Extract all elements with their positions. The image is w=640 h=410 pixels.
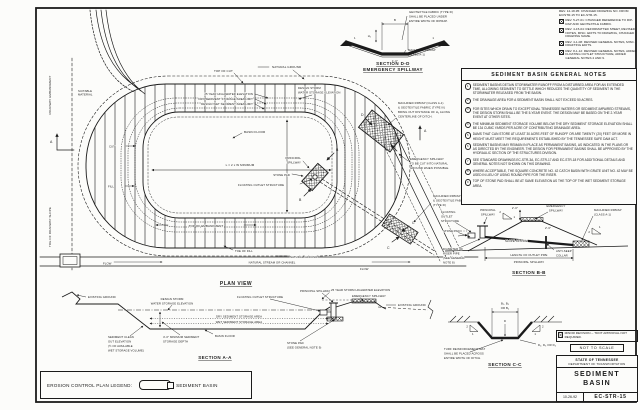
cc-slope-symbol-right	[532, 325, 540, 332]
aa-cleanout-3: (½ OF AVAILABLE	[108, 344, 133, 348]
label-flow-right: FLOW	[360, 267, 369, 271]
dd-slope-left: 1	[354, 36, 356, 40]
dd-fabric-note-3: ENTIRE WIDTH OF RIPRAP.	[409, 19, 448, 23]
bb-floating-outlet	[468, 233, 475, 238]
label-riprap-fabric-1: MACHINED RIPRAP	[433, 194, 461, 198]
note-text: THE MINIMUM SEDIMENT STORAGE VOLUME BELO…	[473, 122, 633, 130]
revision-row: REV. 12-18-95: CHANGED DRAWING NO. FROM …	[559, 10, 638, 17]
label-top-of-embankment: TOP OF EMBANKMENT	[189, 224, 224, 228]
section-aa-detail: EXISTING GROUND DESIGN STORM WATER STORA…	[62, 288, 433, 360]
note-item: 5DAMS THAT CAN STORE AT LEAST 30 ACRE-FE…	[465, 132, 634, 140]
label-suitable-material-2: MATERIAL	[78, 93, 93, 97]
aa-cleanout-1: SEDIMENT CLEAN	[108, 335, 134, 339]
bb-crest-riprap	[521, 218, 543, 222]
note-item: 3FOR SITES WHICH DRAIN TO EXCEPTIONAL TE…	[465, 107, 634, 119]
bb-length-dim-1: LENGTH OF OUTLET PIPE	[510, 253, 547, 257]
note-number: 5	[465, 132, 472, 139]
dd-dim-h: H₂	[368, 34, 371, 38]
cc-slope-rise-left: 1	[472, 332, 474, 336]
spillway-tip-icon	[167, 382, 174, 389]
cc-turf-note-2: SHALL BE PLACED ACROSS	[444, 352, 484, 356]
cc-turf-note-3: ENTIRE WIDTH OF DITCH.	[444, 356, 481, 360]
note-text: SEDIMENT BASINS DETAIN STORMWATER RUNOFF…	[473, 83, 633, 95]
section-a-marker-right: A	[424, 129, 427, 133]
revision-row: REV. 5-27-01: CHANGED REFERENCE TO RIP-R…	[559, 19, 638, 26]
section-cc-title: SECTION C-C	[488, 362, 522, 367]
aa-stone-pad-2: (SEE GENERAL NOTE 9)	[287, 346, 321, 350]
bb-dim1: 2'-0"	[512, 206, 518, 210]
legend-label: EROSION CONTROL PLAN LEGEND:	[47, 383, 132, 388]
bb-principal-2: SPILLWAY	[481, 213, 495, 217]
title-block: MINOR REVISION -- TDOT APPROVAL NOT REQU…	[556, 330, 638, 402]
aa-basin-floor: BASIN FLOOR	[215, 334, 235, 338]
note-item: 6SEDIMENT BASINS MAY REMAIN IN PLACE AS …	[465, 143, 634, 155]
label-roadway-embankment: ROADWAY EMBANKMENT	[48, 75, 52, 114]
general-notes-list: 1SEDIMENT BASINS DETAIN STORMWATER RUNOF…	[462, 81, 636, 188]
label-emergency-note-2: TO BE CUT INTO NATURAL	[410, 162, 448, 166]
aa-design-storm-1: DESIGN STORM	[161, 297, 184, 301]
bb-slope-symbol-left	[503, 213, 512, 219]
label-emergency-note-3: GROUND WHEN POSSIBLE.	[410, 166, 449, 170]
dd-fabric-note-1: GEOTEXTILE FABRIC (TYPE III)	[409, 10, 453, 14]
note-text: TOP OF STONE PAD SHALL BE AT SAME ELEVAT…	[473, 179, 633, 187]
section-cc-detail: B₂, B₃ OR B₄ D D₂, D₃ OR D₄ 2 1 2 1 TURF…	[444, 302, 562, 368]
minor-revision-box: MINOR REVISION -- TDOT APPROVAL NOT REQU…	[556, 330, 638, 342]
note-number: 9	[465, 179, 472, 186]
bb-riser-note-2: RISER PIPE	[443, 252, 460, 256]
label-stone-pad: STONE PAD	[273, 173, 290, 177]
drawing-title: SEDIMENT BASIN	[557, 368, 637, 392]
bb-slope-run-left: 2	[499, 210, 501, 214]
cc-slope-rise-right: 1	[534, 332, 536, 336]
label-riprap-ditch-4: CENTERLINE OF DITCH.	[398, 115, 433, 119]
label-emergency-note-1: EMERGENCY SPILLWAY	[410, 157, 444, 161]
aa-existing-ground-right: EXISTING GROUND	[398, 303, 426, 307]
note-text: SEDIMENT BASINS MAY REMAIN IN PLACE AS P…	[473, 143, 633, 155]
minor-revision-text: MINOR REVISION -- TDOT APPROVAL NOT REQU…	[565, 332, 636, 339]
bb-emergency-2: SPILLWAY	[549, 209, 563, 213]
drawing-sheet: A A B B C C D D	[0, 0, 640, 410]
plan-view-title: PLAN VIEW	[220, 281, 252, 287]
bb-dim3: 2'-6"	[545, 226, 551, 230]
aa-principal-label: PRINCIPAL SPILLWAY	[300, 289, 331, 293]
label-dry-limit: DRY SEDIMENT STORAGE AREA LIMIT	[199, 97, 254, 101]
note-item: 4THE MINIMUM SEDIMENT STORAGE VOLUME BEL…	[465, 122, 634, 130]
drawing-date: 10-26-92	[557, 393, 584, 401]
outlet-riprap-pad	[382, 214, 418, 244]
bb-riser	[480, 226, 485, 238]
revision-text: REV. 5-27-01: CHANGED REFERENCE TO RIP-R…	[565, 19, 638, 26]
label-design-storm-1: DESIGN STORM	[298, 86, 321, 90]
title-block-main: STATE OF TENNESSEE DEPARTMENT OF TRANSPO…	[556, 355, 638, 402]
note-number: 1	[465, 83, 472, 90]
revision-row: REV. 8-1-12: REVISED GENERAL NOTES, ADDE…	[559, 50, 638, 61]
aa-floating-outlet	[320, 310, 327, 315]
note-item: 8WHERE ACCEPTABLE, THE SQUARE CONCRETE N…	[465, 169, 634, 177]
aa-wet-area: WET SEDIMENT STORAGE AREA	[216, 320, 263, 324]
dd-slope-right: 1	[432, 36, 434, 40]
note-text: SEE STANDARD DRAWINGS EC-STR-3A, EC-STR-…	[473, 158, 633, 166]
label-principal-spillway-2: SPILLWAY	[287, 161, 301, 165]
aa-cleanout-2: OUT ELEVATION	[108, 340, 131, 344]
note-number: 7	[465, 158, 472, 165]
cc-width-dim-2: OR B₄	[501, 306, 510, 310]
note-item: 9TOP OF STONE PAD SHALL BE AT SAME ELEVA…	[465, 179, 634, 187]
label-wet-limit: DESIGN WET SEDIMENT AREA LIMIT	[201, 102, 253, 106]
label-design-storm-2: WATER STORAGE ELEVATION	[298, 91, 341, 95]
label-cut: CUT	[109, 145, 115, 149]
bb-outlet-riprap	[573, 241, 589, 247]
aa-emergency-label: EMERGENCY SPILLWAY	[352, 294, 386, 298]
legend-box: EROSION CONTROL PLAN LEGEND: SEDIMENT BA…	[40, 371, 252, 399]
note-number: 6	[465, 143, 472, 150]
aa-riser	[331, 303, 336, 319]
dd-riprap-label-1: MACHINED RIPRAP	[408, 48, 436, 52]
agency-header: STATE OF TENNESSEE DEPARTMENT OF TRANSPO…	[557, 356, 637, 368]
note-text: WHERE ACCEPTABLE, THE SQUARE CONCRETE NO…	[473, 169, 633, 177]
cc-slope-run-right: 2	[542, 325, 544, 329]
revision-text: REV. 12-18-95: CHANGED DRAWING NO. FROM …	[559, 10, 638, 17]
bb-slope-rise-left: 1	[514, 215, 516, 219]
note-item: 1SEDIMENT BASINS DETAIN STORMWATER RUNOF…	[465, 83, 634, 95]
label-floating-outlet: FLOATING OUTLET STRUCTURE	[238, 183, 284, 187]
note-text: FOR SITES WHICH DRAIN TO EXCEPTIONAL TEN…	[473, 107, 633, 119]
bb-riser-note-3: (SEE GENERAL	[443, 256, 465, 260]
revision-row: REV. 4-1-08: REVISED GENERAL NOTES, MISC…	[559, 41, 638, 48]
aa-min-depth-1: 4'-0" MINIMUM SEDIMENT	[163, 335, 200, 339]
bb-length-dim-2: PRINCIPAL SPILLWAY	[514, 260, 545, 264]
aa-stone-pad-1: STONE PAD	[287, 341, 304, 345]
label-top-of-cut: TOP OF CUT	[214, 69, 233, 73]
section-aa-title: SECTION A-A	[198, 355, 232, 360]
aa-min-depth-2: STORAGE DEPTH	[163, 340, 188, 344]
dd-dim-b: B	[394, 18, 396, 22]
roadway-curves	[90, 10, 145, 94]
dd-fabric-note-2: SHALL BE PLACED UNDER	[409, 15, 447, 19]
label-riprap-fabric-3: (TYPE III)	[433, 203, 446, 207]
title-block-footer: 10-26-92 EC-STR-15	[557, 392, 637, 401]
bb-riser-note-1: DIAMETER OF	[443, 247, 463, 251]
aa-design-storm-2: WATER STORAGE ELEVATION	[151, 302, 194, 306]
bb-riser-note-4: NOTE 8)	[443, 261, 455, 265]
checkbox-icon	[559, 19, 564, 24]
bb-floating-3: STRUCTURE	[441, 219, 459, 223]
bb-riprap-1: MACHINED RIPRAP	[594, 208, 622, 212]
label-25yr-high-water: 25 YEAR HIGH WATER ELEVATION	[204, 92, 253, 96]
note-text: THE DRAINAGE AREA FOR A SEDIMENT BASIN S…	[473, 98, 594, 105]
checkbox-icon	[559, 41, 564, 46]
checkbox-icon	[559, 50, 564, 55]
label-fill: FILL	[108, 185, 114, 189]
aa-stone-pad	[327, 317, 343, 321]
label-principal-spillway-1: PRINCIPAL	[286, 156, 302, 160]
label-riprap-ditch-3: BRING OUT DISTANCE OF H₂ ALONG	[398, 110, 450, 114]
section-a-marker-left: A	[50, 140, 53, 144]
cc-slope-run-left: 2	[466, 325, 468, 329]
cc-depth-dim: D₂, D₃ OR D₄	[538, 343, 557, 347]
revision-text: REV. 8-1-12: REVISED GENERAL NOTES, ADDE…	[565, 50, 638, 61]
bb-stone-pad: STONE PAD	[443, 229, 460, 233]
bb-principal-1: PRINCIPAL	[480, 208, 496, 212]
section-dd-title-1: SECTION D-D	[376, 61, 410, 66]
checkbox-icon	[558, 332, 563, 337]
note-number: 3	[465, 107, 472, 114]
note-number: 4	[465, 122, 472, 129]
revision-text: REV. 4-15-04: REFORMATTED SHEET, REVISED…	[565, 28, 638, 39]
label-riprap-ditch-2: & GEOTEXTILE FABRIC (TYPE III)	[398, 106, 445, 110]
bb-slope-rise-right: 1	[599, 225, 601, 229]
legend-item-label: SEDIMENT BASIN	[176, 383, 218, 388]
dd-fabric-leader	[402, 16, 407, 40]
revision-row: REV. 4-15-04: REFORMATTED SHEET, REVISED…	[559, 28, 638, 39]
section-bb-detail: FLOATING OUTLET STRUCTURE PRINCIPAL SPIL…	[441, 202, 628, 275]
label-flow-left: FLOW	[103, 262, 112, 266]
cc-slope-symbol-left	[470, 325, 478, 332]
note-number: 2	[465, 98, 472, 105]
drawing-title-line1: SEDIMENT	[557, 371, 637, 380]
cc-width-dim-1: B₂, B₃	[501, 302, 509, 306]
sediment-basin-symbol-icon	[139, 380, 171, 390]
bb-riprap-2: (CLASS A-1)	[594, 213, 611, 217]
revision-history: REV. 12-18-95: CHANGED DRAWING NO. FROM …	[559, 10, 638, 67]
aa-floating-outlet-label: FLOATING OUTLET STRUCTURE	[237, 295, 283, 299]
aa-break-symbol	[428, 300, 433, 319]
note-number: 8	[465, 169, 472, 176]
label-length-dim: L = 2 x W MINIMUM	[226, 163, 255, 167]
label-toe-of-roadway-slope: TOE OF ROADWAY SLOPE	[48, 207, 52, 247]
label-natural-ground-top: NATURAL GROUND	[272, 65, 302, 69]
agency-dept: DEPARTMENT OF TRANSPORTATION	[557, 362, 637, 366]
general-notes-title: SEDIMENT BASIN GENERAL NOTES	[462, 69, 636, 81]
bb-floating-1: FLOATING	[441, 210, 456, 214]
bb-floating-2: OUTLET	[441, 215, 453, 219]
aa-cleanout-4: WET STORAGE VOLUME)	[108, 349, 144, 353]
aa-dry-area: DRY SEDIMENT STORAGE AREA	[216, 315, 262, 319]
revision-text: REV. 4-1-08: REVISED GENERAL NOTES, MISC…	[565, 41, 638, 48]
bb-outlet-pipe	[485, 237, 573, 245]
note-text: DAMS THAT CAN STORE AT LEAST 30 ACRE-FEE…	[473, 132, 633, 140]
cc-turf-note-1: TURF REINFORCEMENT MAT	[444, 347, 485, 351]
dd-riprap-label-2: (CLASS A-1)	[408, 53, 425, 57]
bb-slope-run-right: 2	[588, 230, 590, 234]
label-natural-ground-bottom: NATURAL GROUND	[290, 255, 317, 259]
section-c-marker-bottom: C	[387, 246, 390, 250]
not-to-scale-box: NOT TO SCALE	[570, 344, 624, 352]
checkbox-icon	[559, 28, 564, 33]
cc-depth-letter: D	[504, 319, 506, 323]
note-item: 7SEE STANDARD DRAWINGS EC-STR-3A, EC-STR…	[465, 158, 634, 166]
label-toe-of-fill: TOE OF FILL	[235, 249, 253, 253]
section-dd-title-2: EMERGENCY SPILLWAY	[363, 67, 423, 72]
bb-anti-seep-2: COLLAR	[556, 254, 568, 258]
bb-slope-of-pipe: SLOPE OF PIPE	[505, 239, 527, 243]
note-item: 2THE DRAINAGE AREA FOR A SEDIMENT BASIN …	[465, 98, 634, 105]
section-dd-detail: B H₂ 1'-0" 1 1 GEOTEXTILE FABRIC (TYPE I…	[340, 10, 453, 72]
section-d-marker-top: D	[361, 113, 364, 117]
bb-anti-seep-1: ANTI-SEEP	[556, 249, 572, 253]
label-basin-floor: BASIN FLOOR	[244, 130, 266, 134]
drawing-canvas: A A B B C C D D	[0, 0, 640, 410]
label-riprap-ditch-1: MACHINED RIPRAP (CLASS A-1)	[398, 101, 444, 105]
aa-emergency-hump	[352, 299, 376, 303]
drawing-number: EC-STR-15	[584, 393, 637, 401]
drawing-title-line2: BASIN	[557, 380, 637, 389]
section-bb-title: SECTION B-B	[512, 270, 546, 275]
aa-25yr-label: 25 YEAR STORM HIGHWATER ELEVATION	[331, 288, 390, 292]
general-notes-box: SEDIMENT BASIN GENERAL NOTES 1SEDIMENT B…	[461, 68, 637, 205]
label-stream-name: NATURAL STREAM OR CHANNEL	[249, 261, 296, 265]
aa-existing-ground: EXISTING GROUND	[88, 295, 116, 299]
